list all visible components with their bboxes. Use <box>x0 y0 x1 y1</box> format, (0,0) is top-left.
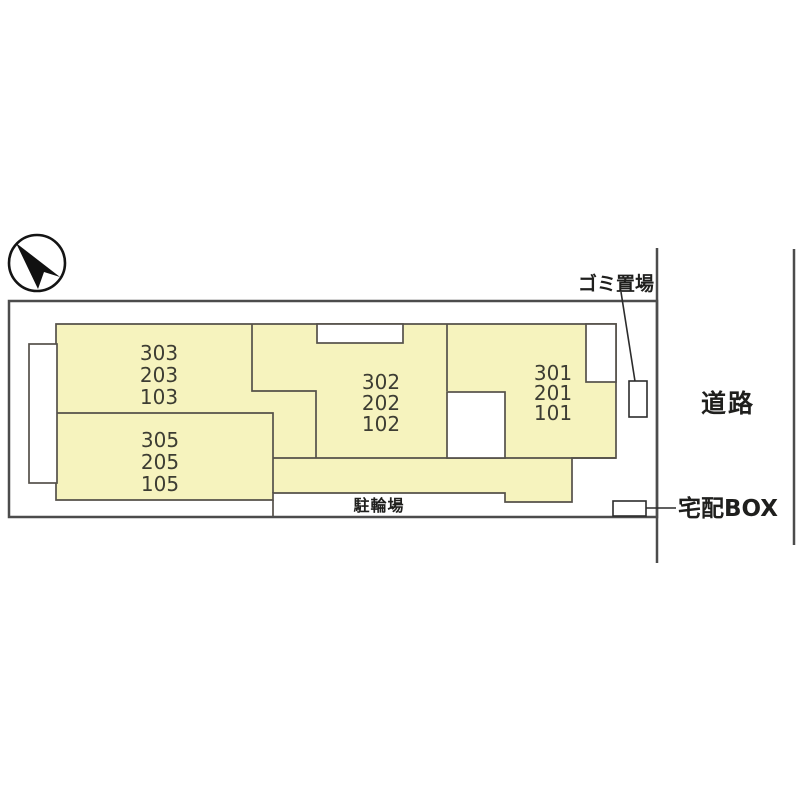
garbage-area-box <box>629 381 647 417</box>
road-label: 道路 <box>701 389 755 418</box>
unit-label: 203 <box>140 363 178 387</box>
unit-label: 303 <box>140 341 178 365</box>
unit-labels-right: 301 201 101 <box>534 361 572 425</box>
entrance-notch-middle <box>317 324 403 343</box>
unit-label: 102 <box>362 412 400 436</box>
delivery-box-label: 宅配BOX <box>678 495 778 522</box>
entrance-notch-right <box>586 324 616 382</box>
site-plan-drawing: 303 203 103 302 202 102 301 201 101 305 … <box>0 0 800 800</box>
unit-label: 103 <box>140 385 178 409</box>
unit-label: 305 <box>141 428 179 452</box>
north-arrow-icon <box>9 235 65 291</box>
delivery-box <box>613 501 646 516</box>
unit-label: 205 <box>141 450 179 474</box>
garbage-leader-line <box>621 292 637 394</box>
unit-label: 101 <box>534 401 572 425</box>
unit-labels-middle: 302 202 102 <box>362 370 400 436</box>
balcony-strip <box>29 344 57 483</box>
unit-labels-left-lower: 305 205 105 <box>141 428 179 496</box>
bicycle-parking-label: 駐輪場 <box>353 496 404 515</box>
garbage-area-label: ゴミ置場 <box>578 272 654 295</box>
courtyard-cutout <box>447 392 505 458</box>
unit-label: 105 <box>141 472 179 496</box>
unit-labels-left-upper: 303 203 103 <box>140 341 178 409</box>
